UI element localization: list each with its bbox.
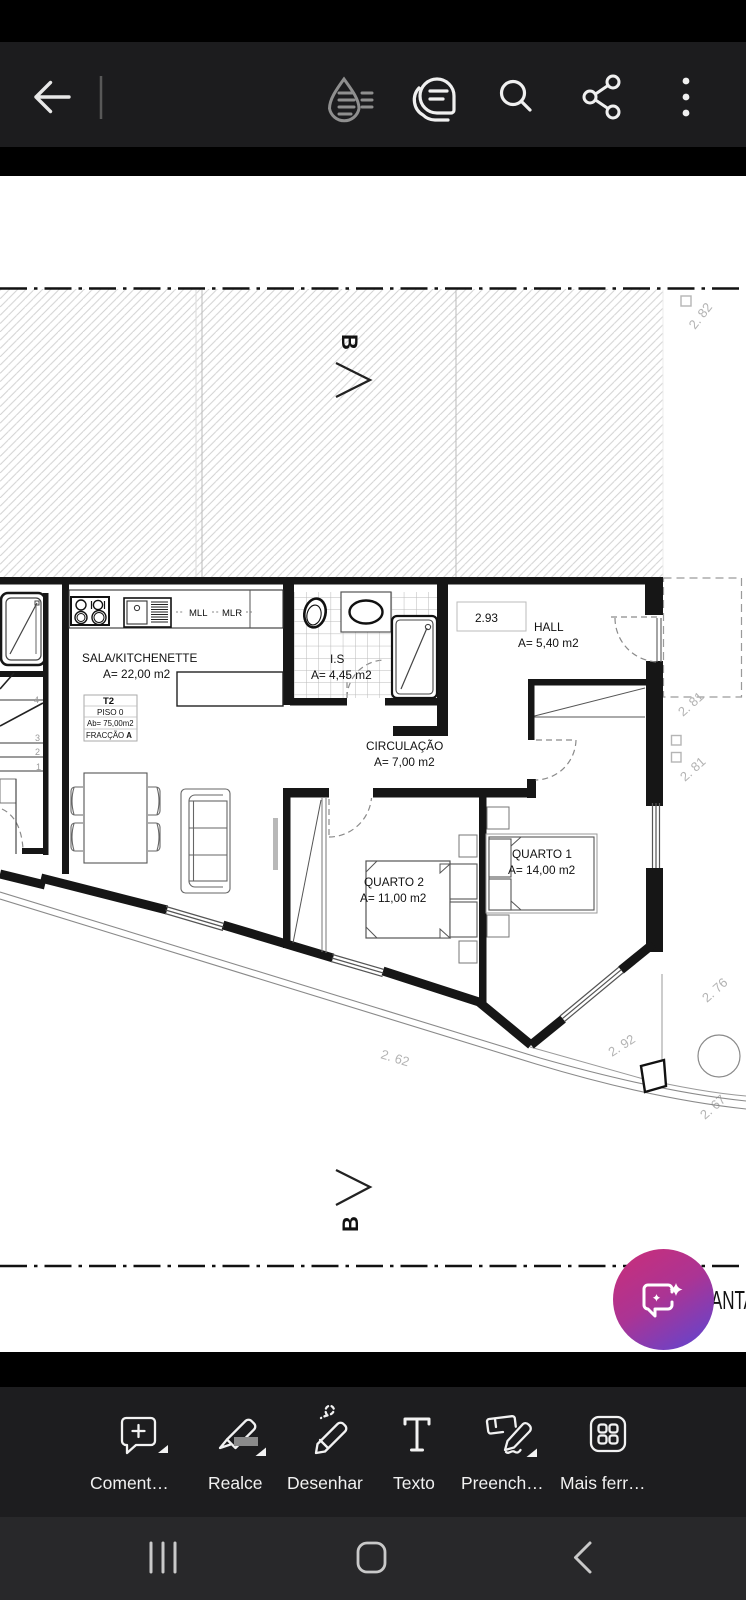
svg-text:2. 81: 2. 81 (675, 689, 707, 719)
svg-text:PISO 0: PISO 0 (97, 708, 124, 717)
svg-text:2: 2 (35, 747, 40, 757)
svg-text:2. 76: 2. 76 (699, 975, 731, 1005)
svg-text:SALA/KITCHENETTE: SALA/KITCHENETTE (82, 651, 198, 665)
svg-text:1: 1 (36, 762, 41, 772)
svg-text:2. 92: 2. 92 (605, 1031, 637, 1059)
svg-text:MLR: MLR (222, 608, 242, 619)
svg-text:T2: T2 (103, 696, 114, 707)
svg-text:A= 7,00 m2: A= 7,00 m2 (374, 755, 435, 769)
svg-text:2. 82: 2. 82 (686, 300, 716, 332)
svg-text:CIRCULAÇÃO: CIRCULAÇÃO (366, 739, 443, 753)
svg-text:QUARTO 2: QUARTO 2 (364, 875, 424, 889)
svg-text:B: B (338, 1216, 363, 1232)
svg-text:QUARTO 1: QUARTO 1 (512, 847, 572, 861)
svg-text:Ab= 75,00m2: Ab= 75,00m2 (87, 719, 134, 728)
svg-text:HALL: HALL (534, 620, 564, 634)
svg-text:I.S: I.S (330, 652, 345, 666)
svg-text:A= 22,00 m2: A= 22,00 m2 (103, 667, 170, 681)
svg-text:A= 14,00 m2: A= 14,00 m2 (508, 863, 575, 877)
svg-text:3: 3 (35, 733, 40, 743)
svg-text:A= 4,45 m2: A= 4,45 m2 (311, 668, 372, 682)
svg-text:2.93: 2.93 (475, 611, 498, 625)
svg-text:MLL: MLL (189, 608, 207, 619)
svg-text:A= 5,40 m2: A= 5,40 m2 (518, 636, 579, 650)
svg-text:B: B (337, 334, 362, 350)
svg-text:2. 62: 2. 62 (379, 1047, 411, 1070)
svg-text:A= 11,00 m2: A= 11,00 m2 (360, 891, 426, 905)
svg-text:4: 4 (34, 695, 39, 705)
svg-text:FRACÇÃO A: FRACÇÃO A (86, 731, 132, 740)
